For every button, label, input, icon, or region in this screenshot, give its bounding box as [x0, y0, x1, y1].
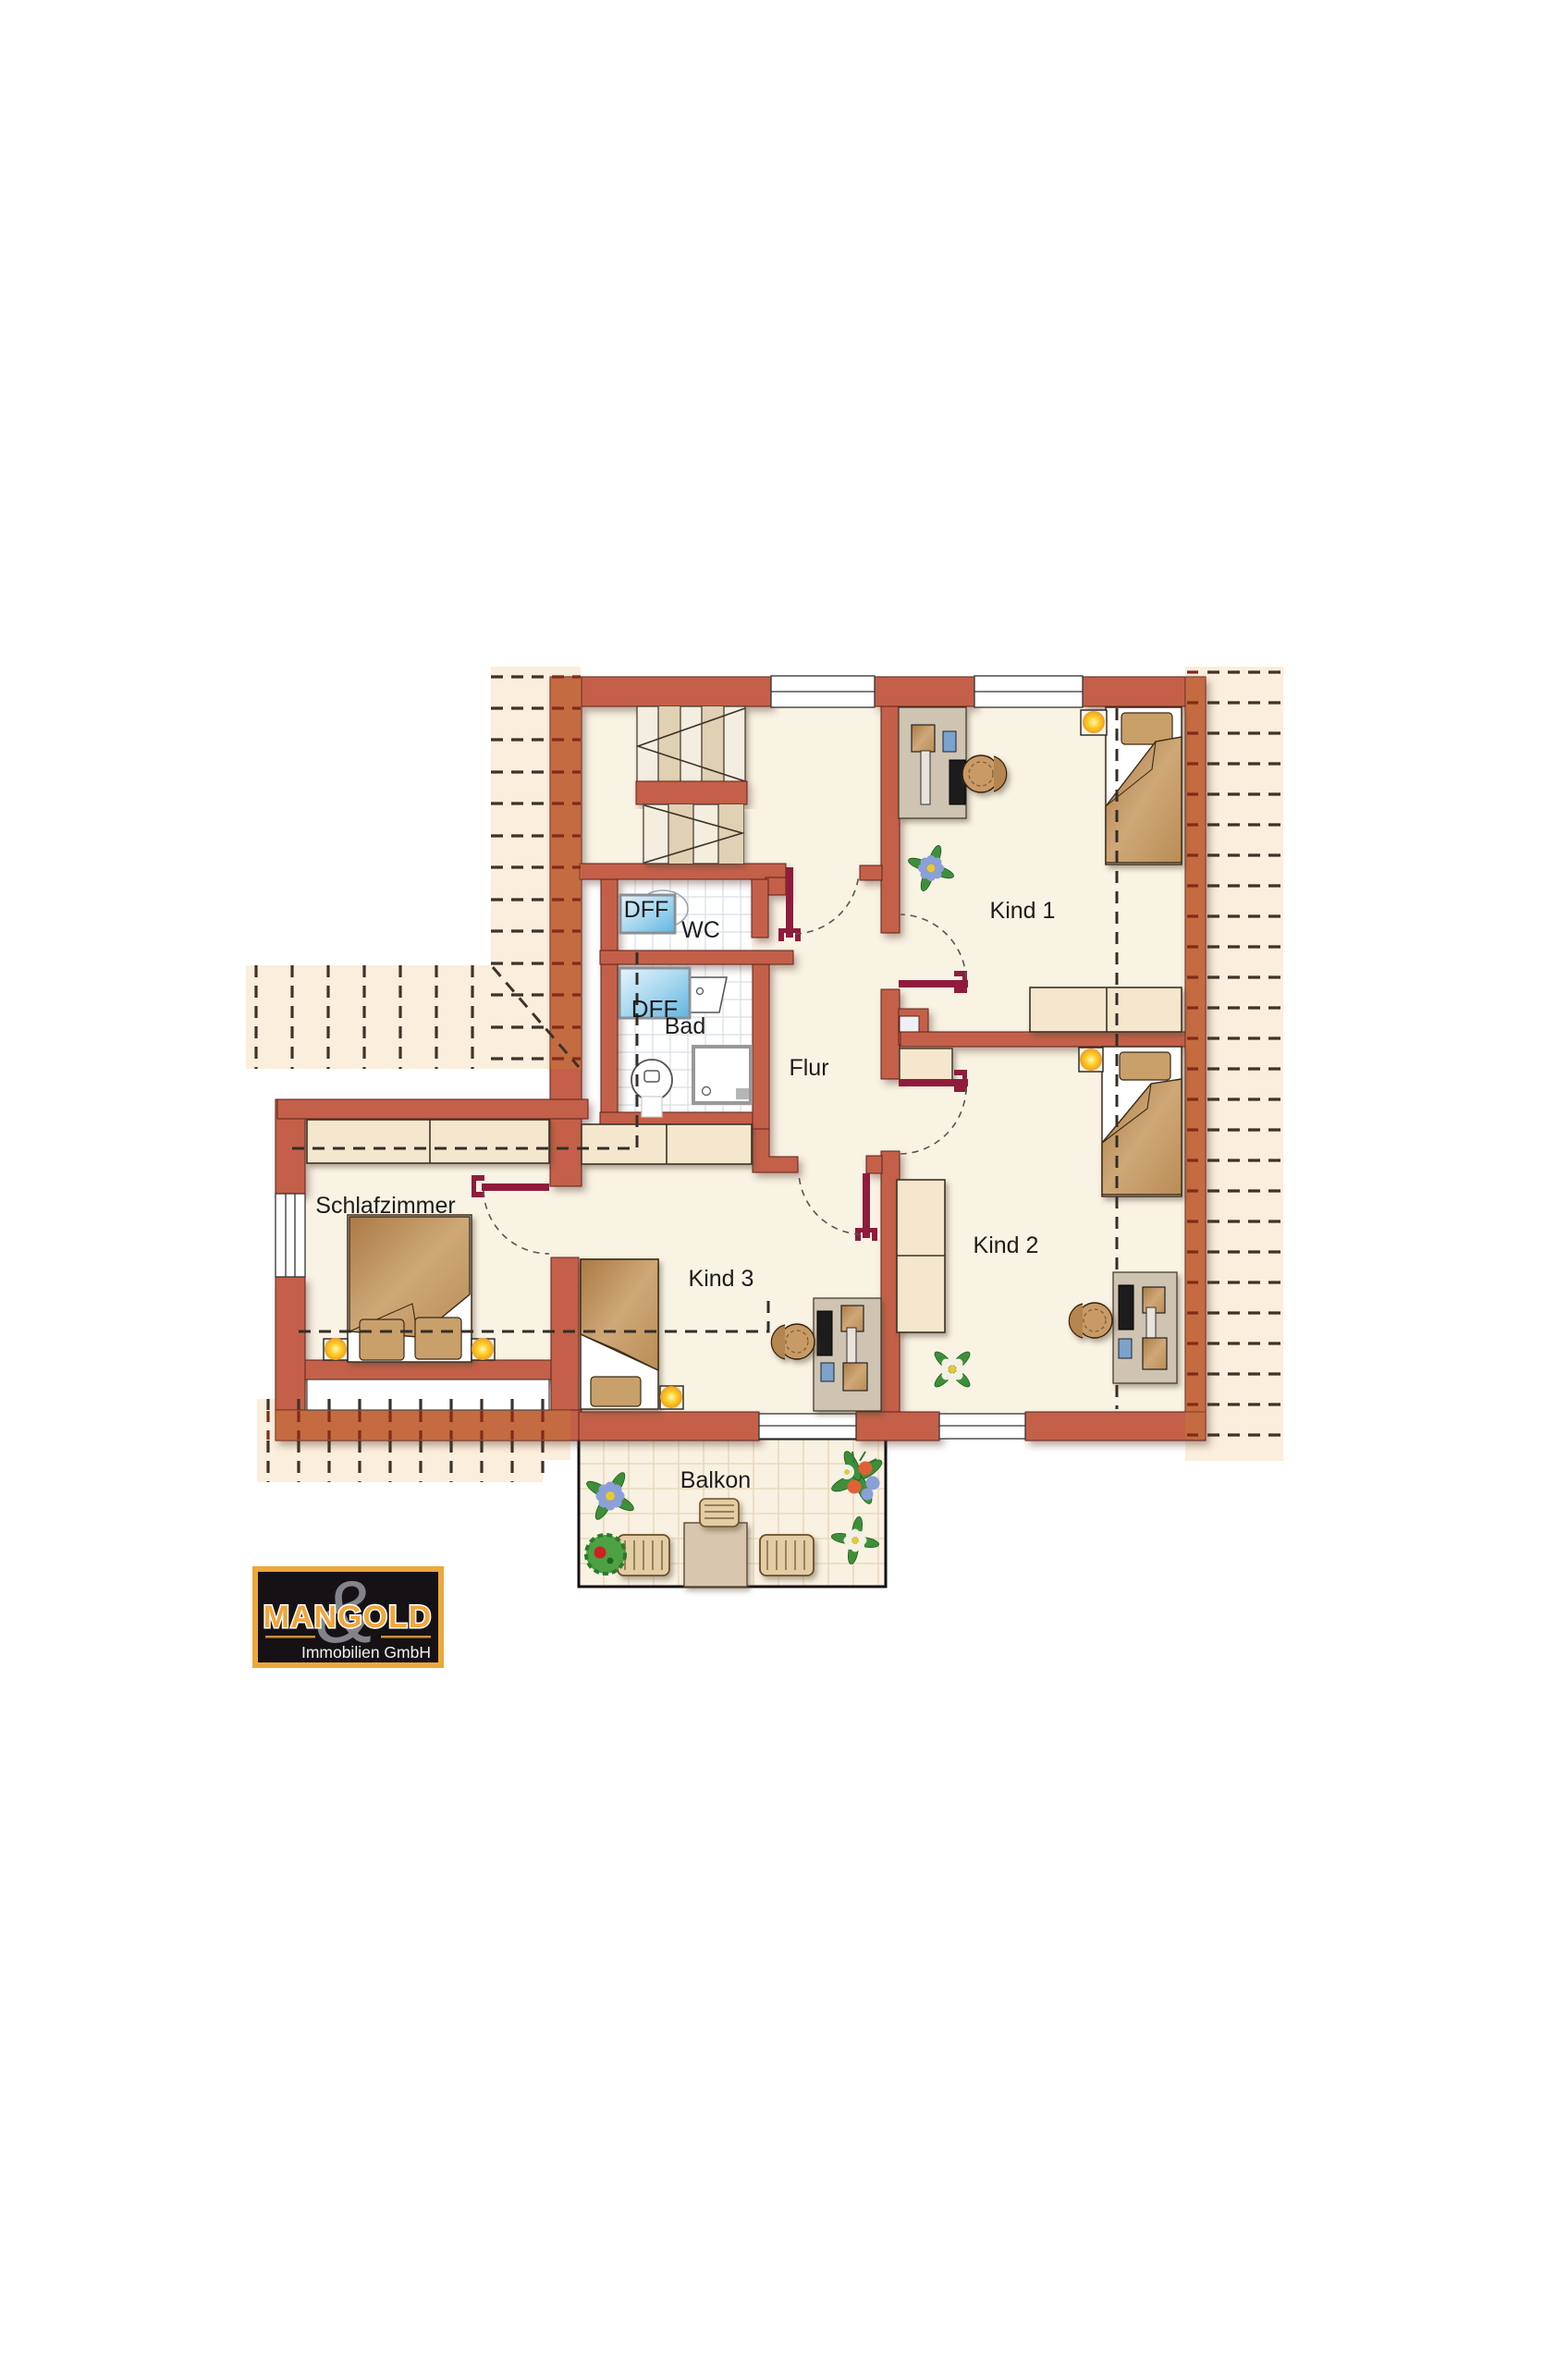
svg-text:DFF: DFF [631, 995, 679, 1023]
svg-text:Kind 2: Kind 2 [974, 1233, 1039, 1258]
svg-text:Flur: Flur [789, 1055, 828, 1081]
svg-text:Schlafzimmer: Schlafzimmer [315, 1193, 455, 1219]
svg-text:WC: WC [681, 917, 720, 943]
svg-text:MANGOLD: MANGOLD [263, 1600, 433, 1635]
svg-text:Kind 3: Kind 3 [689, 1266, 754, 1292]
svg-text:Immobilien GmbH: Immobilien GmbH [301, 1643, 431, 1662]
svg-text:Balkon: Balkon [680, 1467, 751, 1493]
svg-text:Kind 1: Kind 1 [990, 898, 1056, 924]
svg-text:DFF: DFF [624, 897, 669, 923]
